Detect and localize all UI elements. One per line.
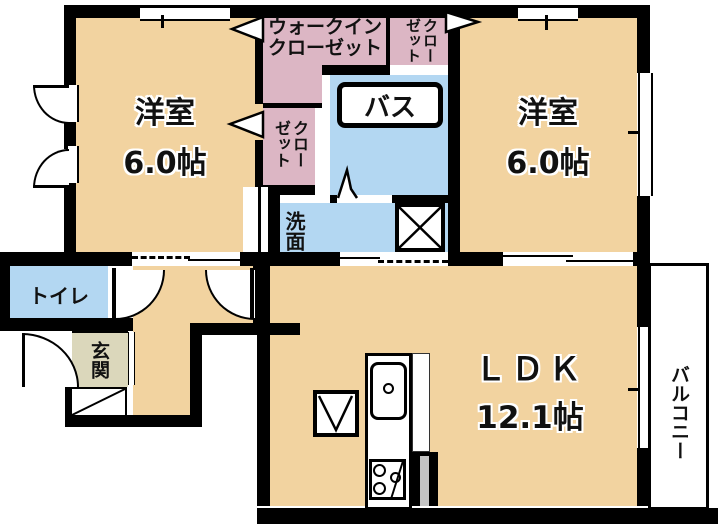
wall-left-b: [64, 122, 76, 149]
bath-label: バス: [364, 87, 416, 124]
bedroom1-sliding-dash: [132, 256, 190, 259]
wall-wic-left-a: [255, 36, 263, 104]
wall-left-a: [64, 5, 76, 85]
closet-bedroom2-label: クローゼット: [396, 14, 438, 66]
ldk-upper: [460, 266, 637, 323]
window-bedroom2-top-tick: [545, 15, 548, 30]
washroom-label: 洗面: [283, 206, 309, 256]
washroom-sliding-line: [340, 257, 380, 259]
stove-burner-3: [390, 472, 401, 483]
walk-in-closet-label: ウォークインクローゼット: [266, 17, 384, 59]
entrance-label: 玄関: [87, 334, 113, 386]
entrance-step: [128, 332, 135, 385]
wall-hall-right: [190, 323, 202, 427]
kitchen-wall-stripe: [420, 456, 429, 506]
wall-ldk-left: [257, 327, 270, 506]
balcony-label: バルコニー: [660, 330, 698, 495]
wall-bedroom2-left: [448, 28, 460, 266]
bedroom1-size: 6.0帖: [90, 138, 240, 182]
wall-ldk-door-jamb: [253, 266, 270, 323]
wall-wic-closet2: [386, 13, 390, 65]
bedroom1-name: 洋室: [90, 88, 240, 132]
bath-door-gap: [337, 195, 392, 203]
casement-window-arc-lower: [33, 149, 69, 188]
room-bedroom1: [76, 18, 263, 252]
wall-closet1-left: [255, 140, 263, 188]
hallway-column: [133, 323, 190, 417]
bedroom1-sliding-line: [188, 259, 240, 261]
room-walk-in-closet-lower: [263, 65, 322, 103]
stove-burner-2: [373, 482, 386, 495]
wall-right-a: [637, 5, 650, 73]
wall-bottom: [257, 508, 718, 524]
window-bedroom1-top-tick: [161, 15, 164, 28]
casement-window-arc-upper: [33, 85, 69, 124]
bedroom1-door-recess: [243, 187, 268, 252]
shoe-cabinet: [70, 387, 127, 417]
bedroom1-recess-line: [258, 187, 261, 252]
window-bedroom2-right: [638, 73, 653, 196]
kitchen-side-panel: [412, 353, 430, 452]
closet-bedroom1-label: クローゼット: [266, 116, 308, 172]
wall-toilet-bottom: [0, 318, 133, 331]
ldk-size: 12.1帖: [440, 392, 620, 437]
toilet-label: トイレ: [10, 280, 108, 309]
bedroom2-name: 洋室: [473, 88, 623, 132]
bedroom2-size: 6.0帖: [473, 138, 623, 182]
window-ldk-right-tick: [628, 388, 640, 391]
toilet-door-leaf: [112, 268, 116, 318]
wall-wic-closet1: [263, 103, 322, 108]
washroom-sliding-dash: [378, 260, 448, 263]
bath-label-box: バス: [337, 82, 443, 128]
window-bedroom1-top: [140, 6, 230, 21]
window-bedroom2-top: [518, 6, 578, 21]
ldk-door-leaf: [250, 268, 254, 318]
wall-wic-bottom: [322, 65, 390, 75]
room-bedroom2: [460, 18, 637, 252]
ldk-name: ＬＤＫ: [440, 344, 620, 390]
bedroom2-sliding-line2: [566, 260, 633, 262]
bedroom2-sliding-line1: [503, 255, 573, 257]
entrance-door-arc: [22, 333, 79, 387]
wall-ldk-nook-top: [190, 323, 300, 335]
floorplan: バス 洋室 6.0帖 洋室 6.0帖 ウォークインクローゼット クローゼット ク…: [0, 0, 718, 526]
stove-burner-1: [373, 464, 386, 477]
sink-drain: [383, 383, 394, 394]
washroom-sliding-door: [340, 252, 448, 266]
window-bedroom2-right-tick: [628, 131, 640, 134]
